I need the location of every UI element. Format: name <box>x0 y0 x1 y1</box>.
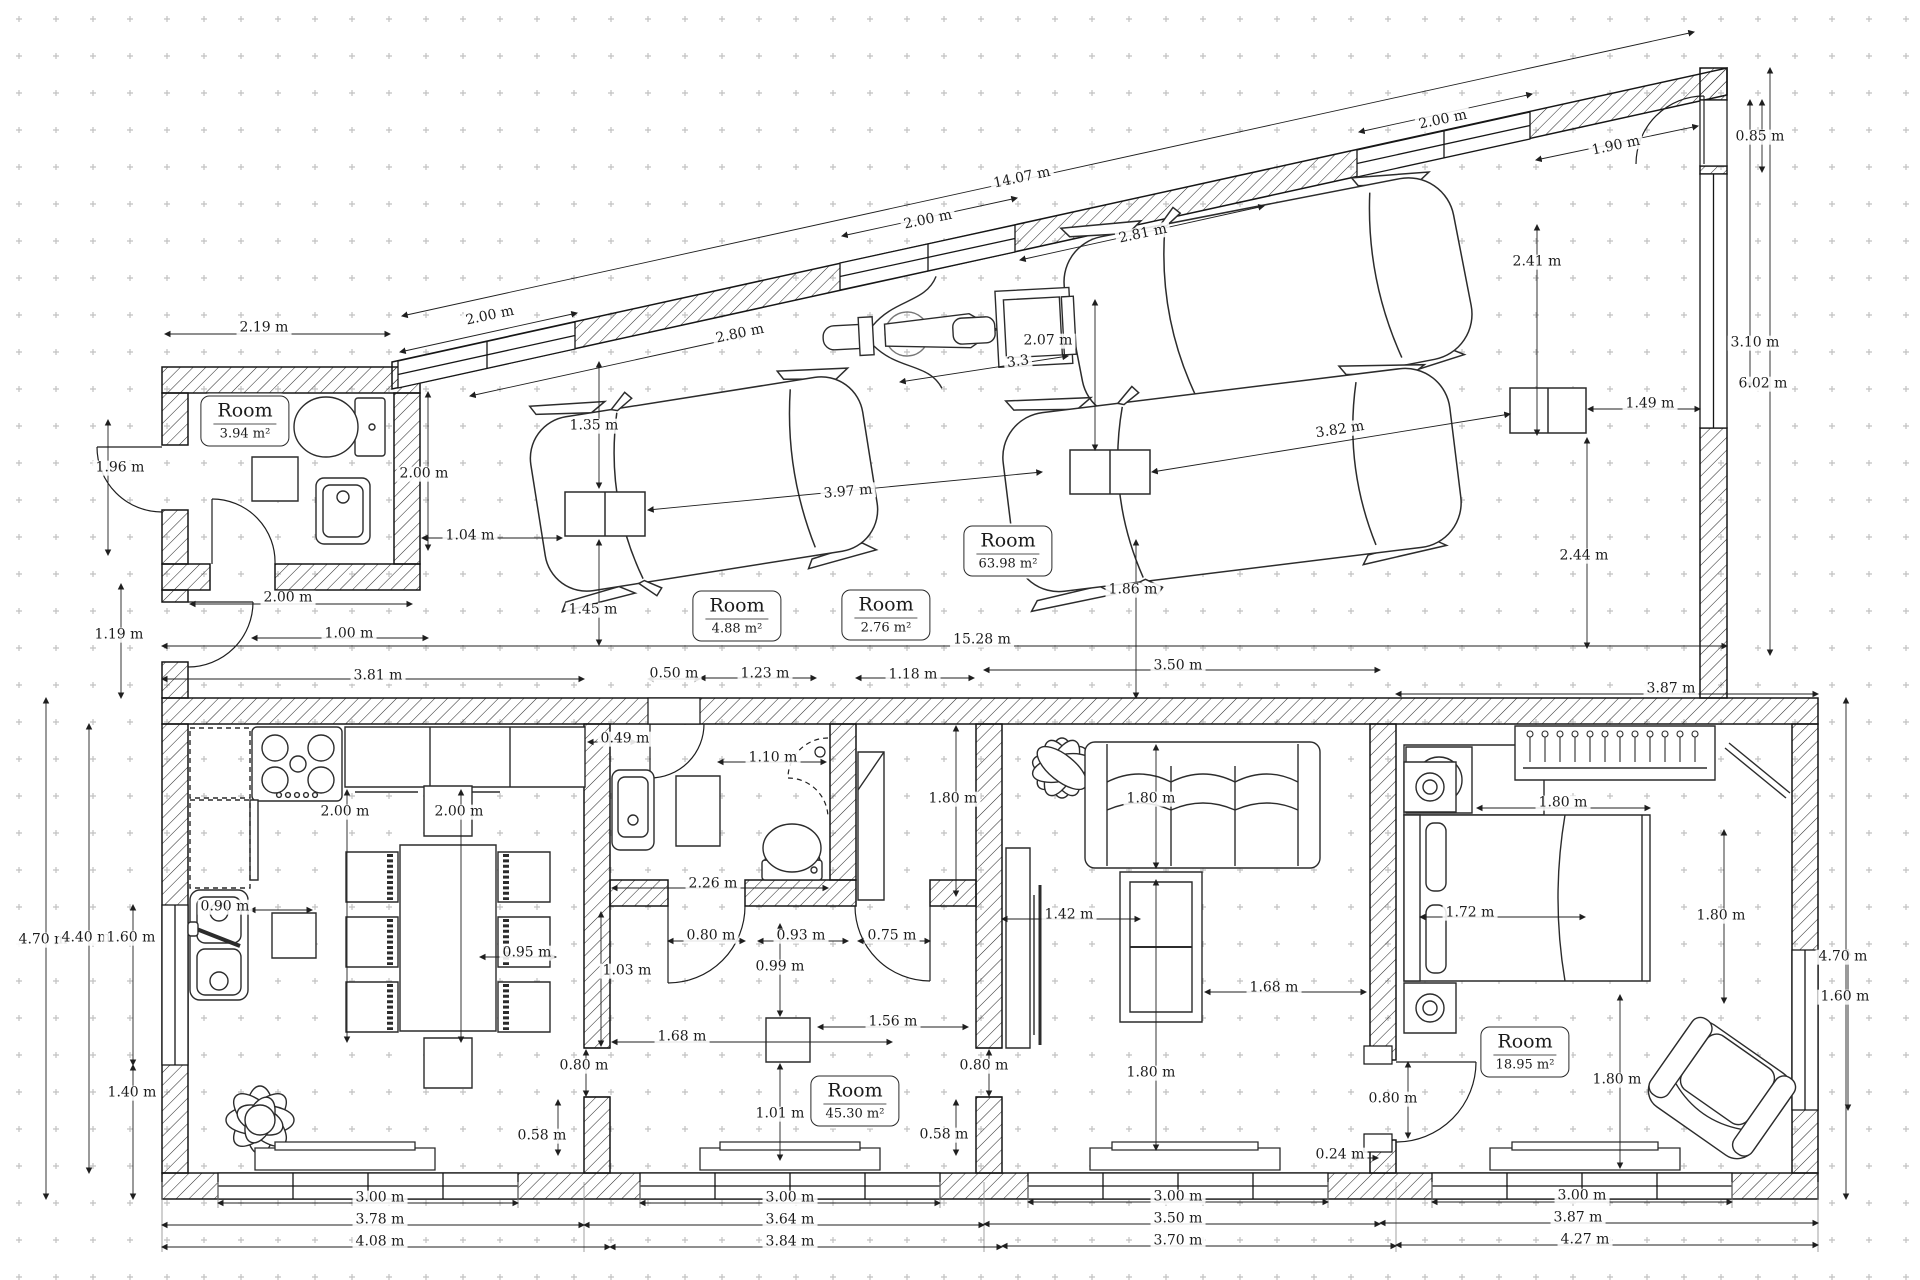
floor-plan-drawing <box>0 0 1920 1280</box>
washbasin-icon <box>316 478 370 544</box>
left-wall-window-icon <box>162 905 188 1065</box>
hall-window-icon <box>640 1173 940 1199</box>
nightstand-icon <box>1404 762 1456 812</box>
nightstand-icon <box>1404 983 1456 1033</box>
toilet-icon <box>294 397 385 457</box>
wardrobe-icon <box>1515 726 1715 780</box>
sofa-icon <box>1085 742 1320 868</box>
garage-right-window-icon <box>1700 174 1727 428</box>
stove-icon <box>252 727 342 801</box>
bath-sink-icon <box>612 770 654 850</box>
bed-icon <box>1404 815 1650 981</box>
floor-plan-canvas: 2.19 m2.00 m2.80 m2.00 m14.07 m2.81 m2.0… <box>0 0 1920 1280</box>
grid-dots <box>0 0 1920 1280</box>
stool-icon <box>252 457 298 501</box>
toilet-icon <box>762 824 822 880</box>
wc-cabinet-icon <box>858 752 884 900</box>
kitchen-window-icon <box>218 1173 518 1199</box>
coffee-table-icon <box>1120 872 1202 1022</box>
bedroom-window-icon <box>1432 1173 1732 1199</box>
bath-cabinet-icon <box>676 776 720 846</box>
stool-icon <box>272 913 316 958</box>
living-window-icon <box>1028 1173 1328 1199</box>
kitchen-sink-icon <box>188 890 248 1000</box>
hall-table-icon <box>766 1018 810 1062</box>
